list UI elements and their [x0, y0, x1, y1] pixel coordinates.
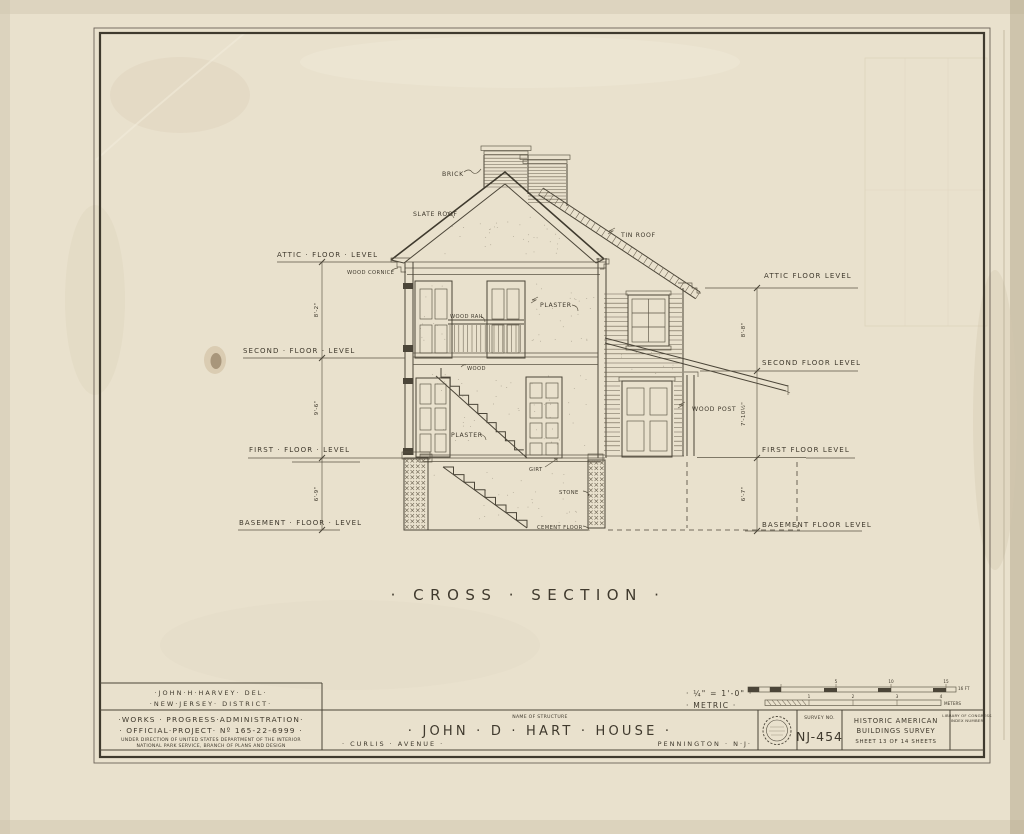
structure-address-street: · CURLIS · AVENUE ·	[342, 740, 444, 748]
floor-label-left-basement: BASEMENT · FLOOR · LEVEL	[239, 519, 362, 527]
dim-left-attic-second: 8'-2"	[314, 303, 320, 318]
agency-name: ·WORKS · PROGRESS·ADMINISTRATION·	[118, 715, 303, 724]
floor-label-right-basement: BASEMENT FLOOR LEVEL	[762, 521, 872, 529]
label-girt: GIRT	[529, 467, 543, 473]
floor-label-left-attic: ATTIC · FLOOR · LEVEL	[277, 251, 378, 259]
agency-box: ·WORKS · PROGRESS·ADMINISTRATION· · OFFI…	[118, 715, 303, 749]
label-stone: STONE	[559, 490, 579, 496]
label-wood-rail: WOOD RAIL	[450, 314, 484, 320]
dim-right-second-first: 7'-10½"	[740, 402, 747, 426]
label-plaster-upper: PLASTER	[540, 302, 572, 309]
dim-right-attic-second: 8'-8"	[741, 323, 747, 338]
label-plaster-lower: PLASTER	[451, 432, 483, 439]
label-wood-cornice: WOOD CORNICE	[347, 270, 394, 276]
dim-left-first-basement: 6'-9"	[314, 487, 320, 502]
label-tin-roof: TIN ROOF	[620, 232, 656, 239]
paper-background	[0, 0, 1024, 834]
name-of-structure-label: NAME OF STRUCTURE	[512, 714, 567, 720]
floor-label-left-second: SECOND · FLOOR · LEVEL	[243, 347, 355, 355]
floor-label-right-second: SECOND FLOOR LEVEL	[762, 359, 861, 367]
sheet-line: SHEET 13 OF 14 SHEETS	[855, 739, 936, 745]
imperial-scale-label: · ¼" = 1'-0" ·	[686, 689, 752, 698]
agency-branch: NATIONAL PARK SERVICE, BRANCH OF PLANS A…	[136, 743, 285, 749]
meters-tick-2: 2	[852, 694, 855, 699]
habs-sheet-svg: BRICK SLATE ROOF TIN ROOF WOOD CORNICE W…	[0, 0, 1024, 834]
floor-label-left-first: FIRST · FLOOR · LEVEL	[249, 446, 350, 454]
metric-scale-label: · METRIC ·	[686, 701, 736, 710]
habs-line2: BUILDINGS SURVEY	[856, 727, 935, 735]
dim-right-first-basement: 6'-7"	[741, 487, 747, 502]
habs-box: HISTORIC AMERICAN BUILDINGS SURVEY SHEET…	[854, 717, 938, 745]
feet-tick-15: 15	[943, 679, 949, 684]
meters-tick-1: 1	[808, 694, 811, 699]
label-wood-floor: WOOD	[467, 366, 486, 372]
feet-end-label: 16 FT	[958, 686, 970, 691]
delineator-name: ·JOHN·H·HARVEY· DEL·	[155, 689, 268, 697]
feet-tick-10: 10	[888, 679, 894, 684]
floor-label-right-first: FIRST FLOOR LEVEL	[762, 446, 850, 454]
survey-no-value: NJ-454	[796, 729, 843, 744]
habs-line1: HISTORIC AMERICAN	[854, 717, 938, 725]
structure-name: · JOHN · D · HART · HOUSE ·	[408, 724, 672, 739]
label-cement-floor: CEMENT FLOOR	[537, 525, 583, 531]
meters-tick-4: 4	[940, 694, 943, 699]
survey-no-label: SURVEY NO.	[804, 715, 835, 721]
project-number: · OFFICIAL·PROJECT· Nº 165-22-6999 ·	[119, 726, 303, 735]
meters-tick-3: 3	[896, 694, 899, 699]
agency-direction: UNDER DIRECTION OF UNITED STATES DEPARTM…	[121, 737, 301, 743]
label-wood-post: WOOD POST	[692, 406, 736, 413]
floor-label-right-attic: ATTIC FLOOR LEVEL	[764, 272, 852, 280]
structure-address-city: PENNINGTON · N·J·	[658, 740, 752, 748]
scanned-drawing-sheet: BRICK SLATE ROOF TIN ROOF WOOD CORNICE W…	[0, 0, 1024, 834]
label-slate-roof: SLATE ROOF	[413, 211, 458, 218]
label-brick: BRICK	[442, 171, 464, 178]
library-line2: INDEX NUMBER	[951, 718, 984, 723]
delineator-district: ·NEW·JERSEY· DISTRICT·	[150, 700, 272, 708]
feet-tick-5: 5	[835, 679, 838, 684]
meters-end-label: METERS	[944, 701, 961, 706]
dim-left-second-first: 9'-6"	[314, 401, 320, 416]
drawing-title: · CROSS · SECTION ·	[391, 586, 666, 604]
